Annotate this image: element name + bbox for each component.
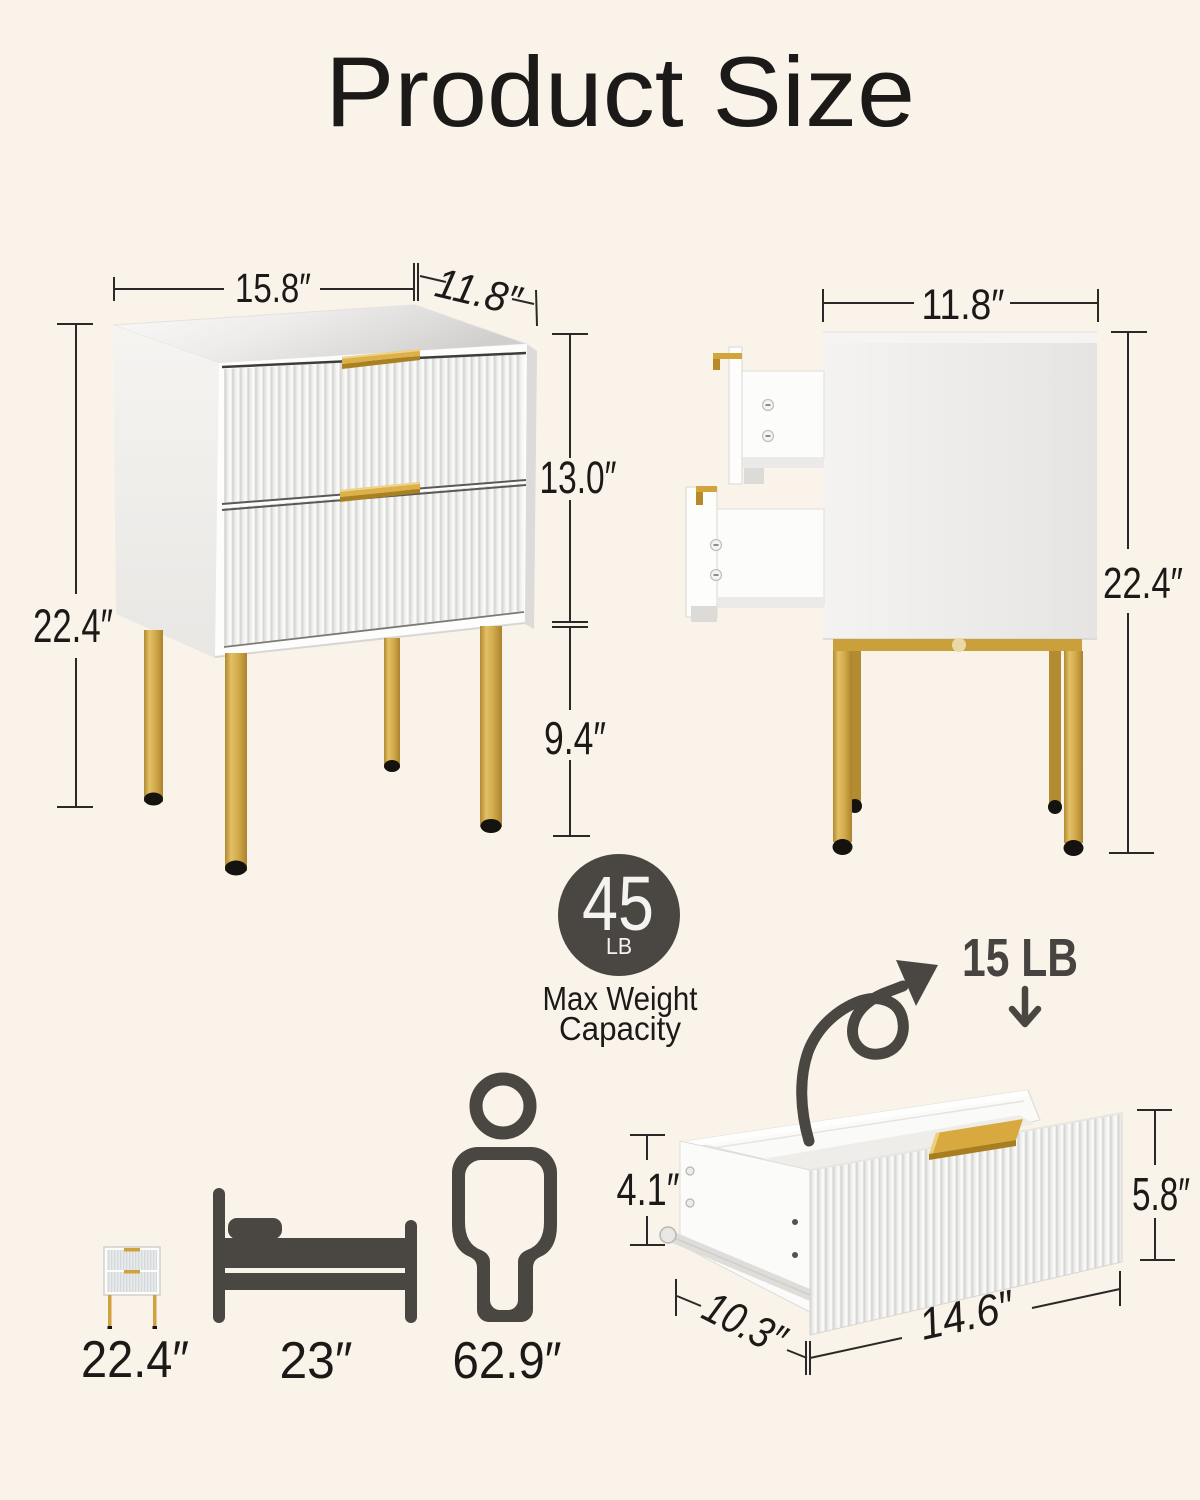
svg-text:Capacity: Capacity	[559, 1010, 681, 1047]
svg-text:4.1″: 4.1″	[617, 1164, 680, 1215]
svg-text:13.0″: 13.0″	[540, 452, 617, 503]
svg-text:5.8″: 5.8″	[1132, 1168, 1190, 1220]
svg-text:9.4″: 9.4″	[544, 712, 606, 764]
svg-text:11.8″: 11.8″	[922, 281, 1005, 329]
svg-text:23″: 23″	[280, 1332, 353, 1390]
svg-text:22.4″: 22.4″	[33, 599, 113, 652]
svg-text:22.4″: 22.4″	[1103, 559, 1183, 608]
svg-text:62.9″: 62.9″	[453, 1332, 562, 1390]
svg-text:15.8″: 15.8″	[235, 265, 311, 311]
svg-text:LB: LB	[606, 933, 632, 959]
svg-text:Product Size: Product Size	[325, 36, 915, 147]
svg-text:15 LB: 15 LB	[962, 928, 1078, 988]
svg-text:22.4″: 22.4″	[81, 1331, 189, 1389]
